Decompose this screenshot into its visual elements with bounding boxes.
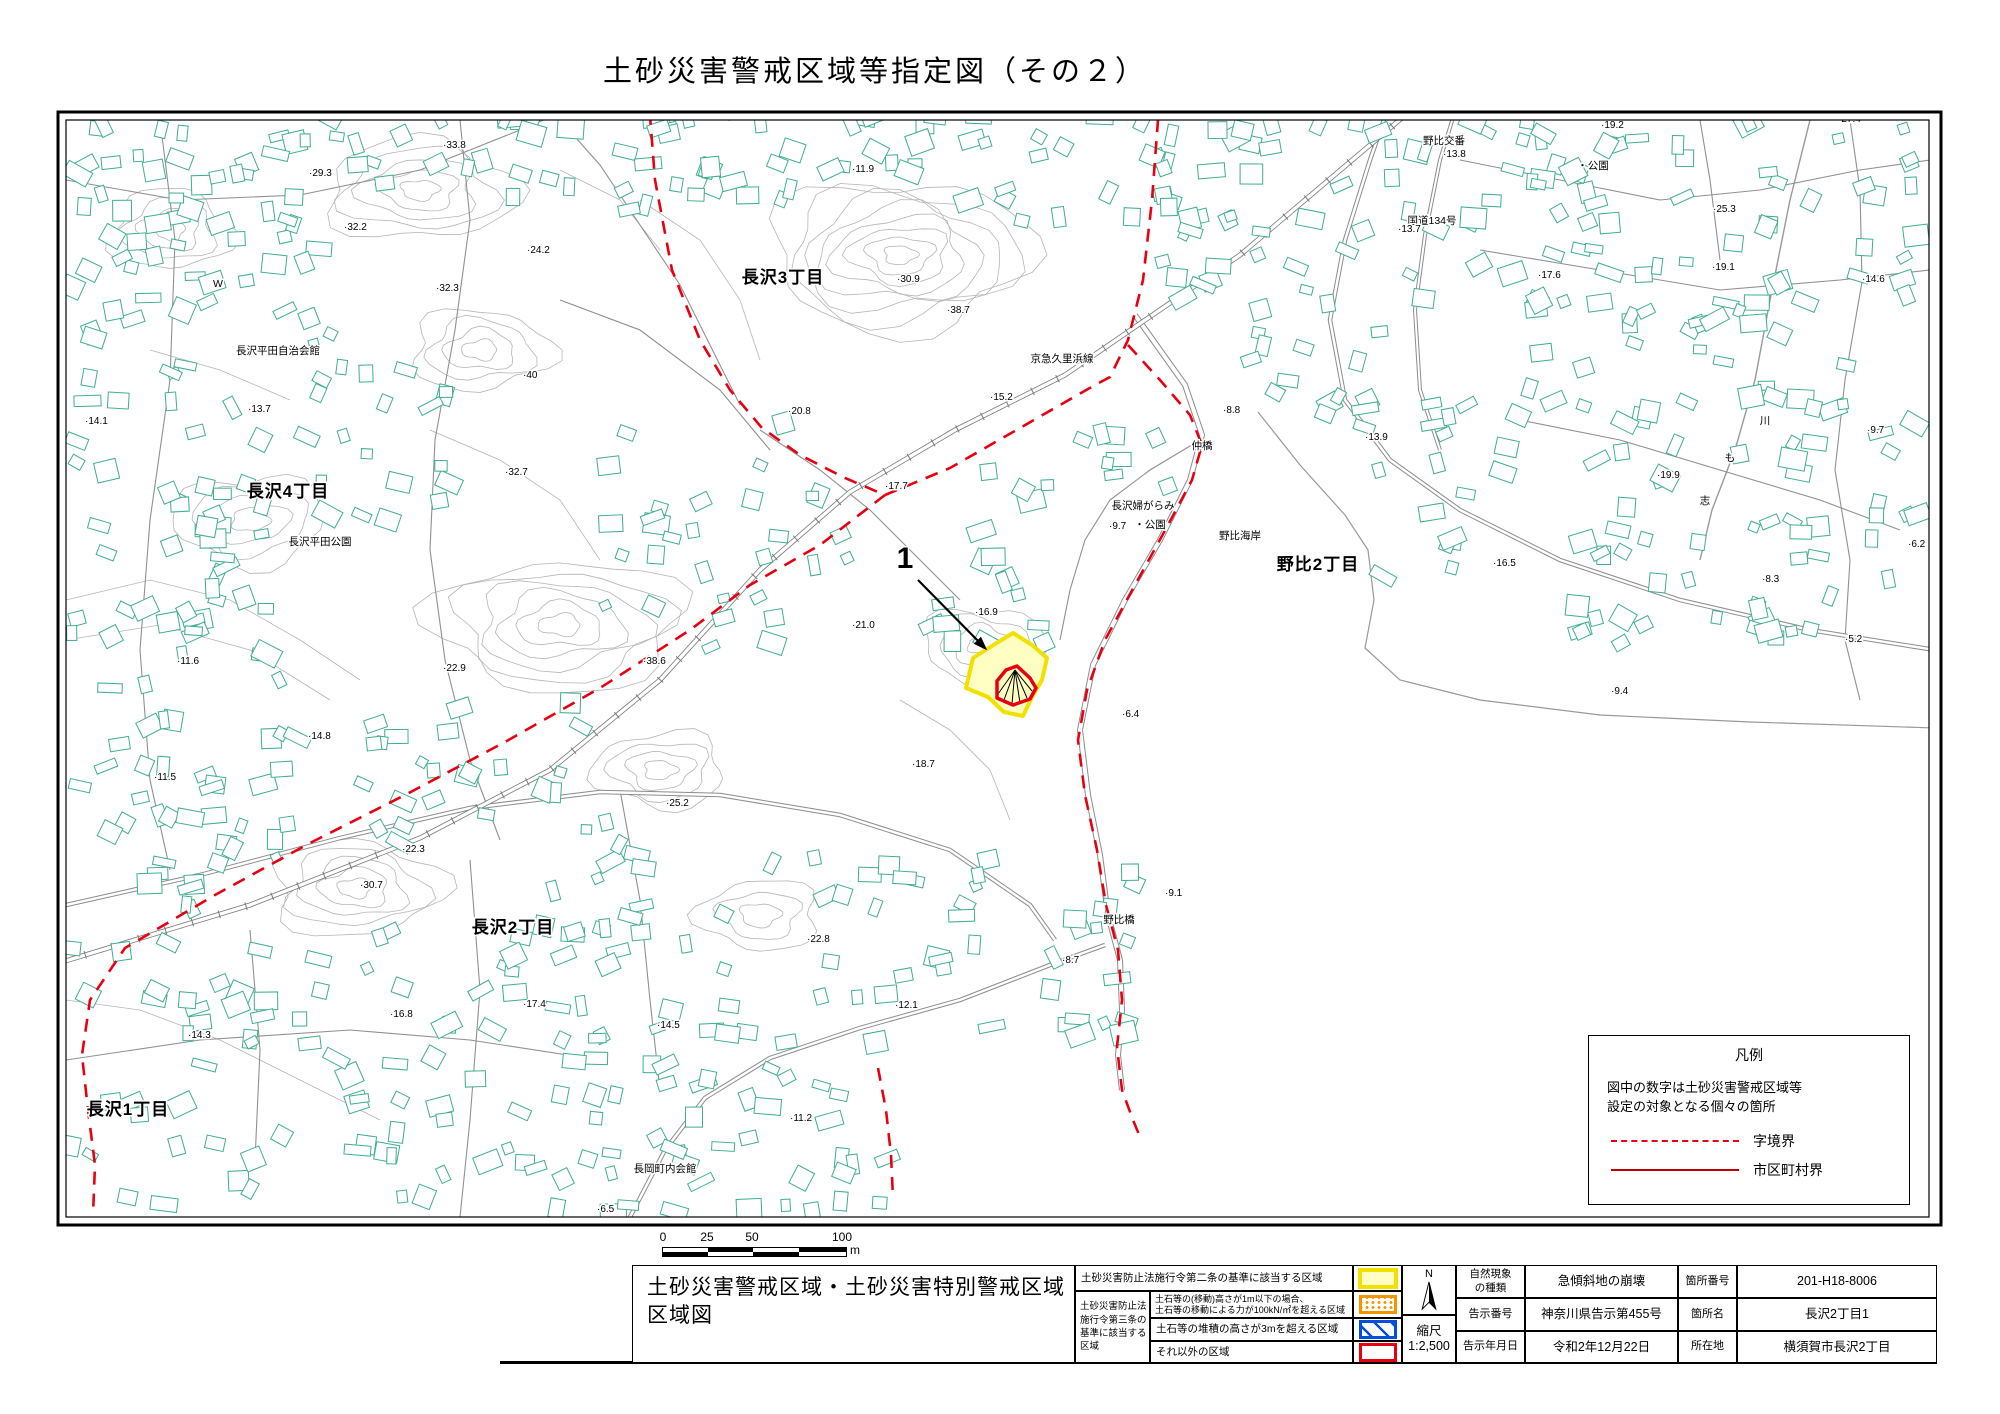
spot-elevation: ·32.3	[436, 283, 459, 294]
yellow-zone-swatch	[1358, 1268, 1398, 1289]
spot-elevation: ·18.7	[912, 759, 935, 770]
law3-label-line4: 区域	[1080, 1340, 1099, 1353]
scale-bar: 0 25 50 100 m	[655, 1230, 885, 1260]
spot-elevation: ·9.1	[1165, 888, 1183, 899]
legend-note-line2: 設定の対象となる個々の箇所	[1607, 1098, 1909, 1117]
legend-row-aza-boundary: 字境界	[1611, 1131, 1909, 1151]
notice-number-value: 神奈川県告示第455号	[1525, 1298, 1678, 1331]
legend-row-municipal-boundary: 市区町村界	[1611, 1160, 1909, 1180]
spot-elevation: ·14.6	[1862, 274, 1885, 285]
spot-elevation: ·22.3	[402, 844, 425, 855]
spot-elevation: ·24.2	[527, 245, 550, 256]
spot-elevation: ·25.2	[666, 798, 689, 809]
spot-elevation: ·9.4	[1611, 686, 1629, 697]
spot-elevation: ·20.8	[788, 406, 811, 417]
spot-elevation: ·21.0	[852, 620, 875, 631]
location-value: 横須賀市長沢2丁目	[1737, 1331, 1937, 1363]
scale-tick-100: 100	[832, 1230, 852, 1244]
place-label: W	[213, 278, 223, 290]
place-label: 長沢平田公園	[289, 535, 352, 548]
place-label: も	[1725, 452, 1736, 464]
law3-row1-swatch-cell	[1353, 1291, 1402, 1318]
legend-note-line1: 図中の数字は土砂災害警戒区域等	[1607, 1079, 1909, 1098]
law3-label-line3: 基準に該当する	[1080, 1327, 1147, 1340]
spot-elevation: ·11.9	[852, 164, 874, 175]
law3-row1-line1: 土石等の(移動)高さが1m以下の場合、	[1155, 1294, 1309, 1305]
spot-elevation: ·13.8	[1443, 149, 1466, 160]
spot-elevation: ·8.7	[1062, 955, 1080, 966]
scale-label: 縮尺	[1416, 1324, 1441, 1339]
site-number-value: 201-H18-8006	[1737, 1265, 1937, 1298]
aza-boundary-label: 字境界	[1753, 1131, 1795, 1151]
place-label: 長岡町内会館	[634, 1162, 697, 1175]
district-label: 長沢2丁目	[472, 917, 554, 937]
spot-elevation: ·22.9	[443, 663, 466, 674]
spot-elevation: ·6.2	[1908, 539, 1926, 550]
blue-hatched-swatch	[1359, 1320, 1397, 1339]
law2-swatch-cell	[1353, 1265, 1402, 1291]
spot-elevation: ·29.3	[309, 168, 332, 179]
legend-title: 凡例	[1589, 1045, 1909, 1065]
district-label: 長沢3丁目	[742, 267, 824, 287]
spot-elevation: ·16.8	[390, 1009, 413, 1020]
place-label: 野比交番	[1423, 134, 1465, 147]
law3-row3-text: それ以外の区域	[1150, 1341, 1353, 1363]
spot-elevation: ·14.5	[657, 1020, 680, 1031]
spot-elevation: ·19.9	[1657, 470, 1680, 481]
map-title-cell: 土砂災害警戒区域・土砂災害特別警戒区域 区域図	[632, 1265, 1075, 1363]
map-title-line1: 土砂災害警戒区域・土砂災害特別警戒区域	[647, 1275, 1065, 1300]
spot-elevation: ·14.1	[85, 416, 108, 427]
scale-value: 1:2,500	[1408, 1339, 1450, 1354]
law3-row3-swatch-cell	[1353, 1341, 1402, 1363]
spot-elevation: ·19.2	[1601, 120, 1624, 131]
compass-cell: N	[1402, 1265, 1456, 1315]
spot-elevation: ·13.7	[1398, 224, 1421, 235]
site-number-label: 箇所番号	[1678, 1265, 1737, 1298]
district-label: 長沢4丁目	[247, 481, 329, 501]
legend-note: 図中の数字は土砂災害警戒区域等 設定の対象となる個々の箇所	[1607, 1079, 1909, 1117]
spot-elevation: ·32.2	[344, 222, 367, 233]
phenomenon-type-label: 自然現象 の種類	[1456, 1265, 1525, 1298]
site-name-value: 長沢2丁目1	[1737, 1298, 1937, 1331]
spot-elevation: ·17.4	[523, 999, 546, 1010]
notice-number-label: 告示番号	[1456, 1298, 1525, 1331]
place-label: 長沢平田自治会館	[236, 344, 320, 357]
spot-elevation: ·14.3	[188, 1030, 211, 1041]
law3-label-line2: 施行令第三条の	[1080, 1314, 1147, 1327]
spot-elevation: ·8.8	[1223, 405, 1241, 416]
district-label: 長沢1丁目	[87, 1099, 169, 1119]
spot-elevation: ·11.6	[177, 656, 199, 667]
law3-row2-text: 土石等の堆積の高さが3mを超える区域	[1150, 1318, 1353, 1341]
place-label: 野比橋	[1103, 913, 1135, 926]
spot-elevation: ·25.3	[1713, 204, 1736, 215]
place-label: 長沢婦がらみ	[1112, 499, 1175, 512]
place-label: 仲橋	[1192, 439, 1214, 452]
scale-cell: 縮尺 1:2,500	[1402, 1315, 1456, 1363]
dashed-red-line-sample	[1611, 1140, 1739, 1142]
notice-date-label: 告示年月日	[1456, 1331, 1525, 1363]
spot-elevation: ·22.8	[807, 934, 830, 945]
law3-zone-label: 土砂災害防止法 施行令第三条の 基準に該当する 区域	[1075, 1291, 1150, 1363]
place-label: 志	[1700, 494, 1711, 507]
spot-elevation: ·38.6	[643, 656, 666, 667]
place-label: 京急久里浜線	[1031, 352, 1094, 365]
spot-elevation: ·30.9	[897, 274, 920, 285]
north-arrow-icon	[1420, 1281, 1438, 1311]
spot-elevation: ·12.1	[895, 1000, 918, 1011]
solid-red-line-sample	[1611, 1169, 1739, 1171]
district-label: 野比2丁目	[1277, 554, 1359, 574]
scale-bar-frame	[662, 1247, 847, 1257]
hazard-map-sheet: 土砂災害警戒区域等指定図（その２） 長沢3丁目長沢4丁目野比2丁目長沢2丁目長沢…	[0, 0, 2000, 1414]
spot-elevation: ·11.2	[790, 1113, 812, 1124]
spot-elevation: ·16.9	[975, 607, 998, 618]
site-name-label: 箇所名	[1678, 1298, 1737, 1331]
spot-elevation: ·32.7	[505, 467, 528, 478]
phenomenon-type-label-line1: 自然現象	[1470, 1268, 1512, 1281]
spot-elevation: ·6.4	[1122, 709, 1140, 720]
scale-tick-25: 25	[700, 1230, 713, 1244]
north-label: N	[1425, 1268, 1433, 1281]
spot-elevation: ·9.7	[1867, 425, 1885, 436]
sheet-info-table: 土砂災害警戒区域・土砂災害特別警戒区域 区域図 土砂災害防止法施行令第二条の基準…	[632, 1265, 1937, 1363]
spot-elevation: ·15.2	[990, 392, 1013, 403]
law2-zone-text: 土砂災害防止法施行令第二条の基準に該当する区域	[1075, 1265, 1353, 1291]
phenomenon-type-value: 急傾斜地の崩壊	[1525, 1265, 1678, 1298]
spot-elevation: ·33.8	[443, 140, 466, 151]
spot-elevation: ·13.7	[248, 404, 271, 415]
spot-elevation: ·14.8	[308, 731, 331, 742]
spot-elevation: ·40	[523, 370, 538, 381]
place-label: 野比海岸	[1219, 529, 1261, 542]
spot-elevation: ·13.9	[1365, 432, 1388, 443]
scale-tick-50: 50	[745, 1230, 758, 1244]
law3-row1-line2: 土石等の移動による力が100kN/㎡を超える区域	[1155, 1305, 1345, 1316]
spot-elevation: ·8.3	[1762, 574, 1780, 585]
spot-elevation: ·30.7	[360, 880, 383, 891]
phenomenon-type-label-line2: の種類	[1475, 1282, 1507, 1295]
spot-elevation: ·11.5	[154, 772, 176, 783]
spot-elevation: ·38.7	[947, 305, 970, 316]
orange-dotted-swatch	[1359, 1295, 1397, 1314]
site-marker-label: 1	[897, 542, 914, 575]
law3-label-line1: 土砂災害防止法	[1080, 1300, 1147, 1313]
spot-elevation: ·19.1	[1712, 262, 1735, 273]
municipal-boundary-label: 市区町村界	[1753, 1160, 1823, 1180]
spot-elevation: ·16.5	[1493, 558, 1516, 569]
red-outline-swatch	[1359, 1343, 1397, 1362]
scale-unit: m	[850, 1243, 860, 1257]
location-label: 所在地	[1678, 1331, 1737, 1363]
place-label: ・公園	[1134, 519, 1166, 531]
notice-date-value: 令和2年12月22日	[1525, 1331, 1678, 1363]
spot-elevation: ·17.7	[885, 481, 908, 492]
scale-tick-0: 0	[660, 1230, 667, 1244]
spot-elevation: ·5.2	[1845, 634, 1863, 645]
place-label: ・公園	[1577, 160, 1609, 172]
law3-row2-swatch-cell	[1353, 1318, 1402, 1341]
spot-elevation: ·6.5	[597, 1204, 615, 1215]
map-title-line2: 区域図	[647, 1303, 713, 1328]
spot-elevation: ·9.7	[1109, 521, 1127, 532]
spot-elevation: ·17.6	[1538, 270, 1561, 281]
legend-box: 凡例 図中の数字は土砂災害警戒区域等 設定の対象となる個々の箇所 字境界 市区町…	[1588, 1035, 1910, 1205]
law3-row1-text: 土石等の(移動)高さが1m以下の場合、 土石等の移動による力が100kN/㎡を超…	[1150, 1291, 1353, 1318]
place-label: 川	[1760, 415, 1771, 427]
